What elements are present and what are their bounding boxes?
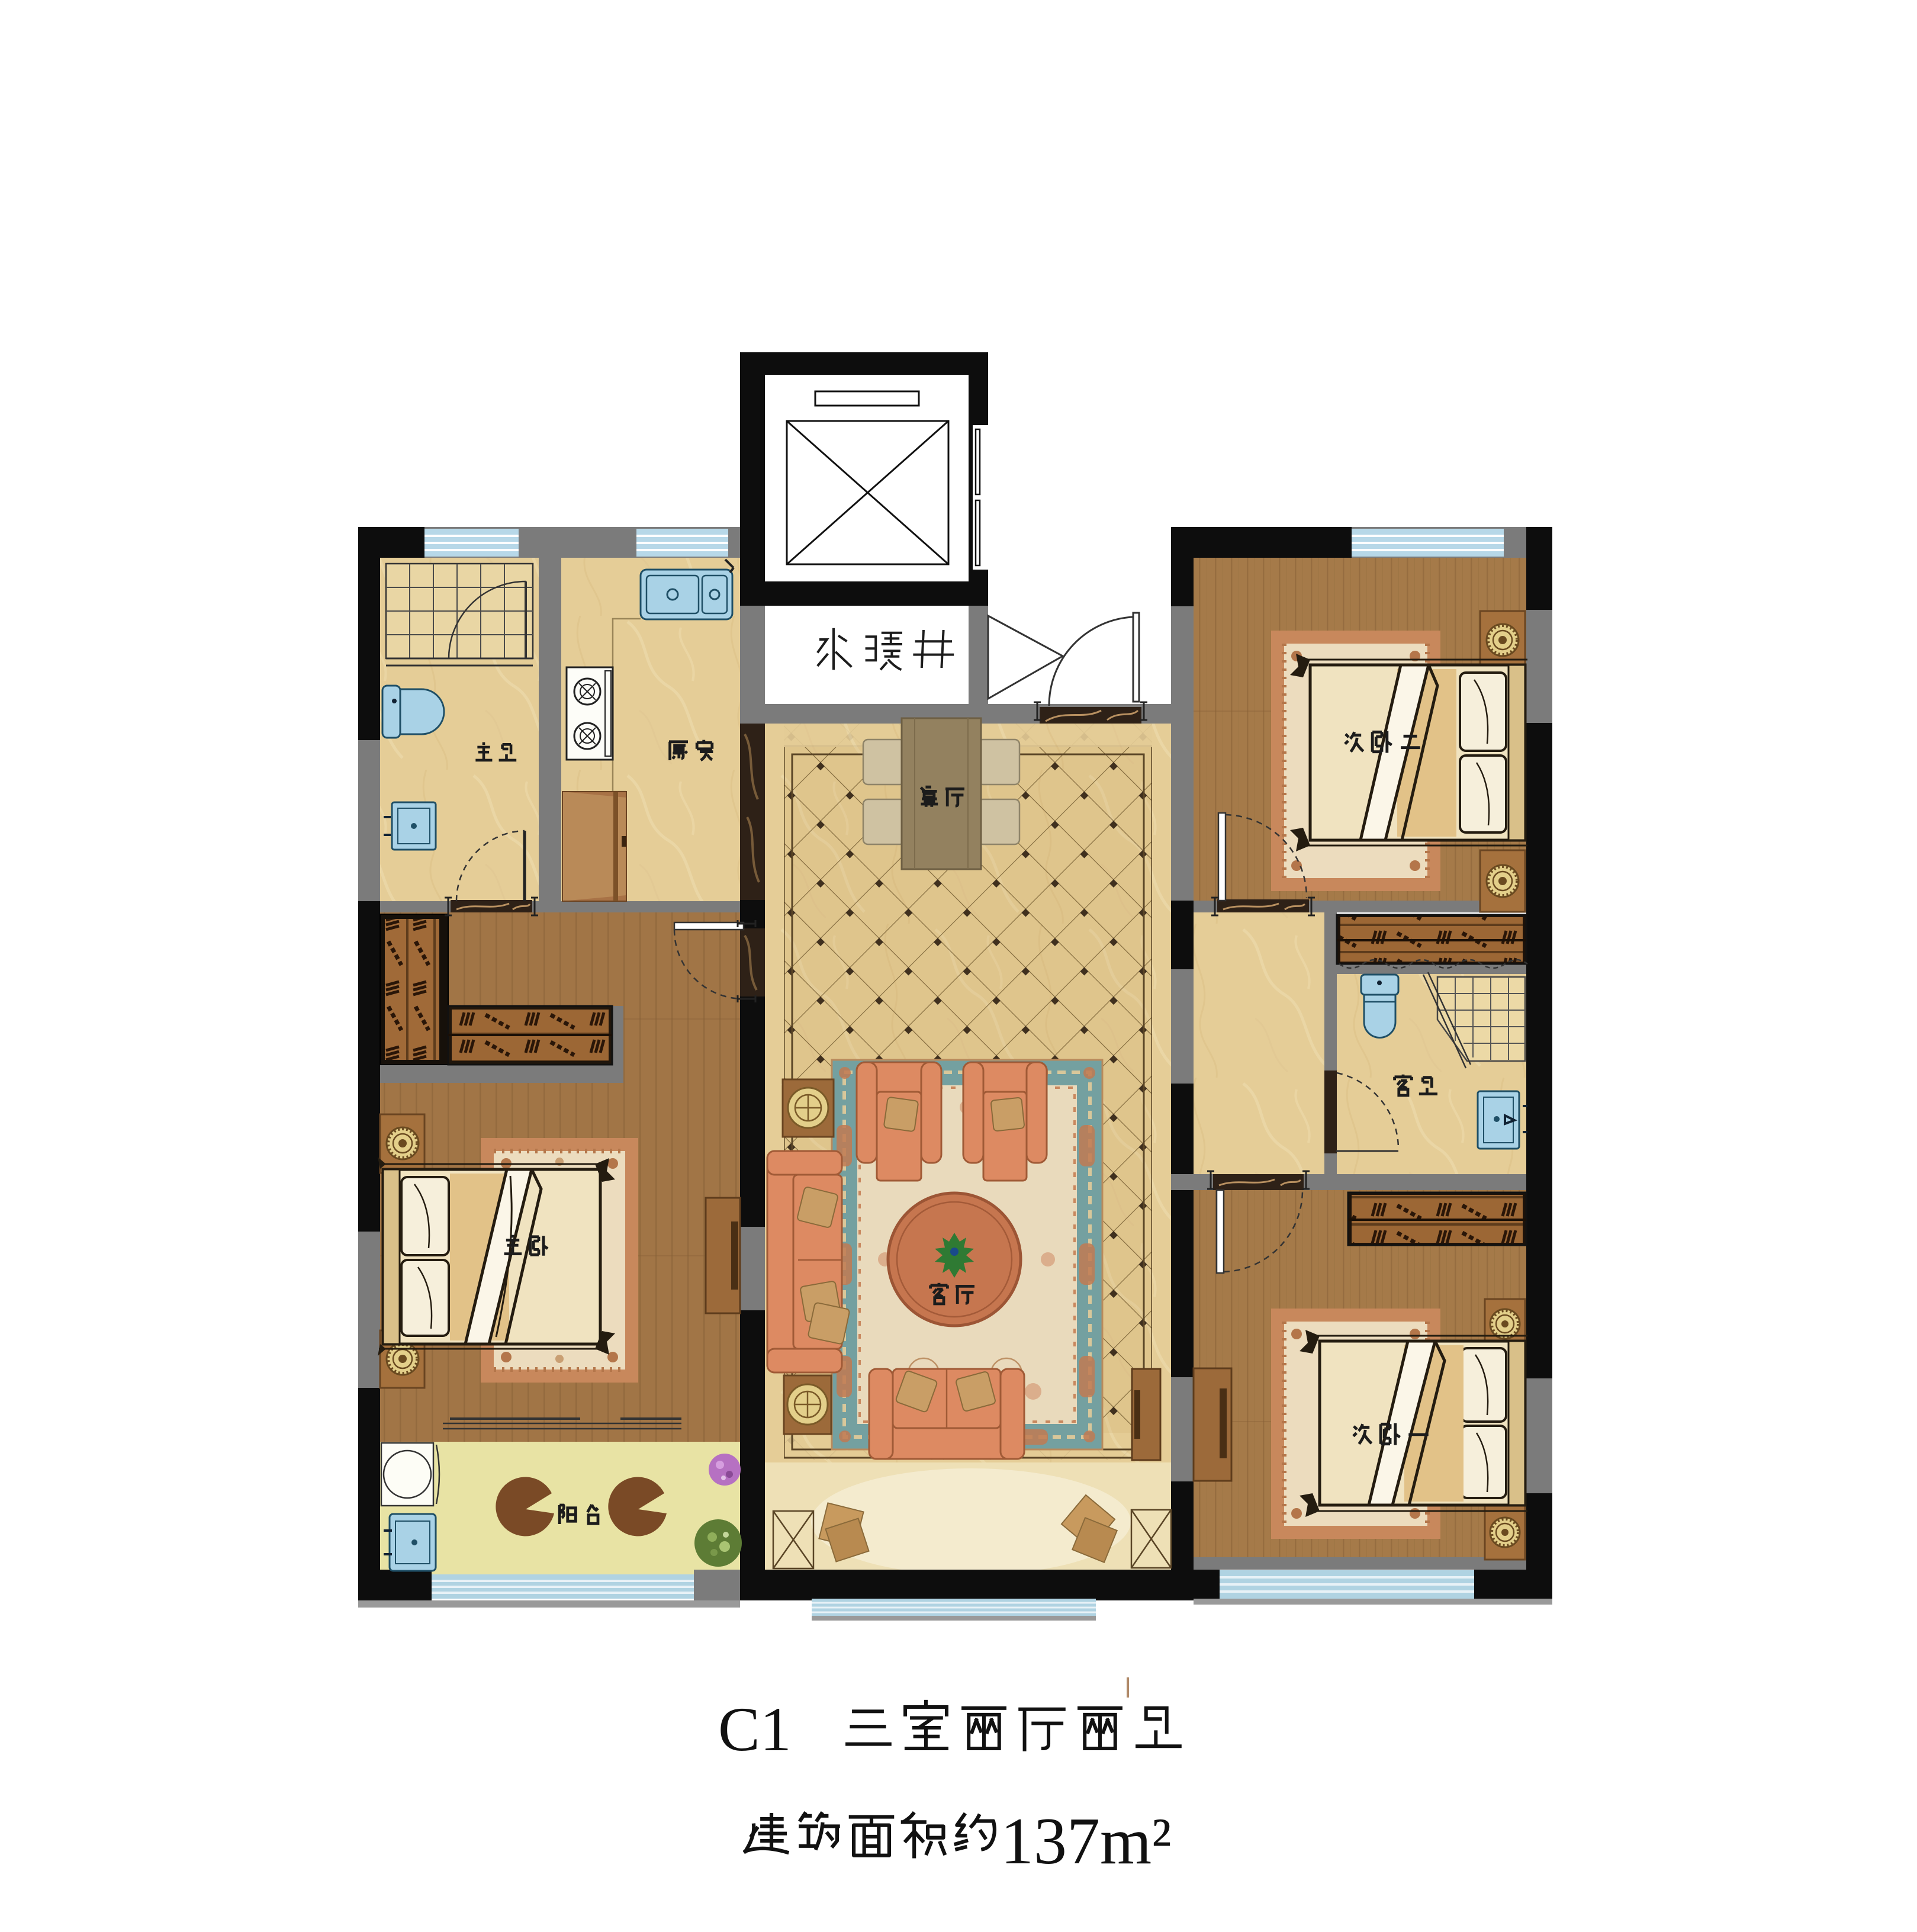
svg-text:C1: C1 (718, 1695, 792, 1764)
svg-text:137m²: 137m² (1001, 1805, 1172, 1878)
